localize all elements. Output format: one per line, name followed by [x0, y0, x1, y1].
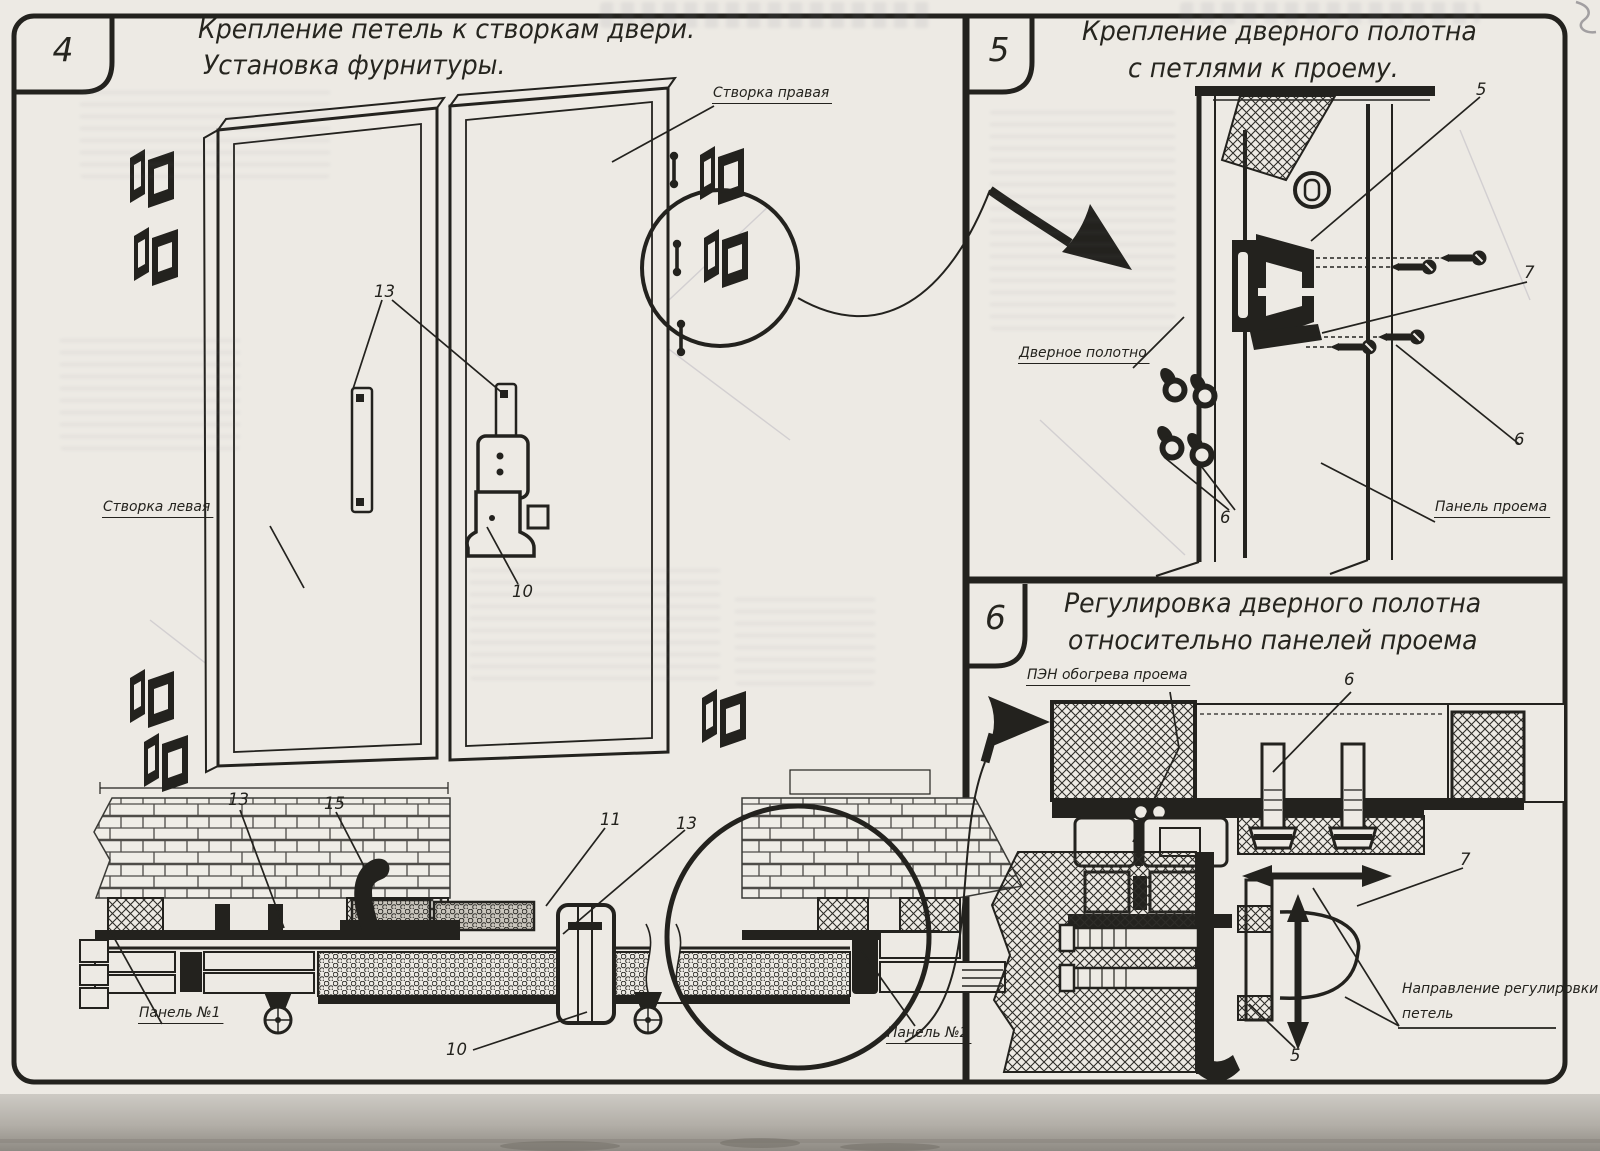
panel4-number: 4	[14, 30, 112, 69]
callout-10-section: 10	[446, 1040, 467, 1059]
label-opening-panel: Панель проема	[1434, 500, 1550, 518]
callout-15-handle: 15	[324, 794, 345, 813]
callout-7: 7	[1524, 263, 1535, 282]
panel4-title-line2: Установка фурнитуры.	[203, 50, 505, 81]
panel5-number: 5	[966, 30, 1032, 69]
label-direction-line2: петель	[1402, 1007, 1453, 1023]
bleedthrough-ghost	[80, 88, 330, 178]
bleedthrough-ghost	[60, 335, 240, 450]
scanned-assembly-instruction-page: 4 5 6 Крепление петель к створкам двери.…	[0, 0, 1600, 1151]
label-left-leaf: Створка левая	[102, 500, 213, 518]
panel5-title-line2: с петлями к проему.	[1128, 53, 1399, 84]
callout-5-hinge: 5	[1476, 80, 1487, 99]
callout-11: 11	[600, 810, 621, 829]
label-direction-line1: Направление регулировки	[1402, 982, 1598, 998]
callout-6-bolt: 6	[1344, 670, 1355, 689]
callout-7-hinge: 7	[1460, 850, 1471, 869]
panel6-number: 6	[966, 598, 1025, 637]
callout-13-section-right: 13	[676, 814, 697, 833]
panel6-title-line2: относительно панелей проема	[1068, 625, 1478, 656]
label-panel-no2: Панель №2	[886, 1026, 971, 1044]
bleedthrough-ghost	[735, 595, 875, 685]
panel6-title-line1: Регулировка дверного полотна	[1064, 588, 1481, 619]
label-panel-no1: Панель №1	[138, 1006, 223, 1024]
callout-13-hinge-plates: 13	[374, 282, 395, 301]
callout-5: 5	[1290, 1046, 1301, 1065]
callout-6-screws: 6	[1514, 430, 1525, 449]
panel5-title-line1: Крепление дверного полотна	[1082, 16, 1477, 47]
callout-6-nuts: 6	[1220, 508, 1231, 527]
bleedthrough-ghost	[470, 565, 720, 680]
label-heater: ПЭН обогрева проема	[1026, 668, 1190, 686]
bleedthrough-ghost	[990, 110, 1175, 330]
label-right-leaf: Створка правая	[712, 86, 832, 104]
panel4-title-line1: Крепление петель к створкам двери.	[198, 14, 695, 45]
callout-13-section-left: 13	[228, 790, 249, 809]
callout-10-latch: 10	[512, 582, 533, 601]
label-door-leaf: Дверное полотно	[1018, 346, 1150, 364]
